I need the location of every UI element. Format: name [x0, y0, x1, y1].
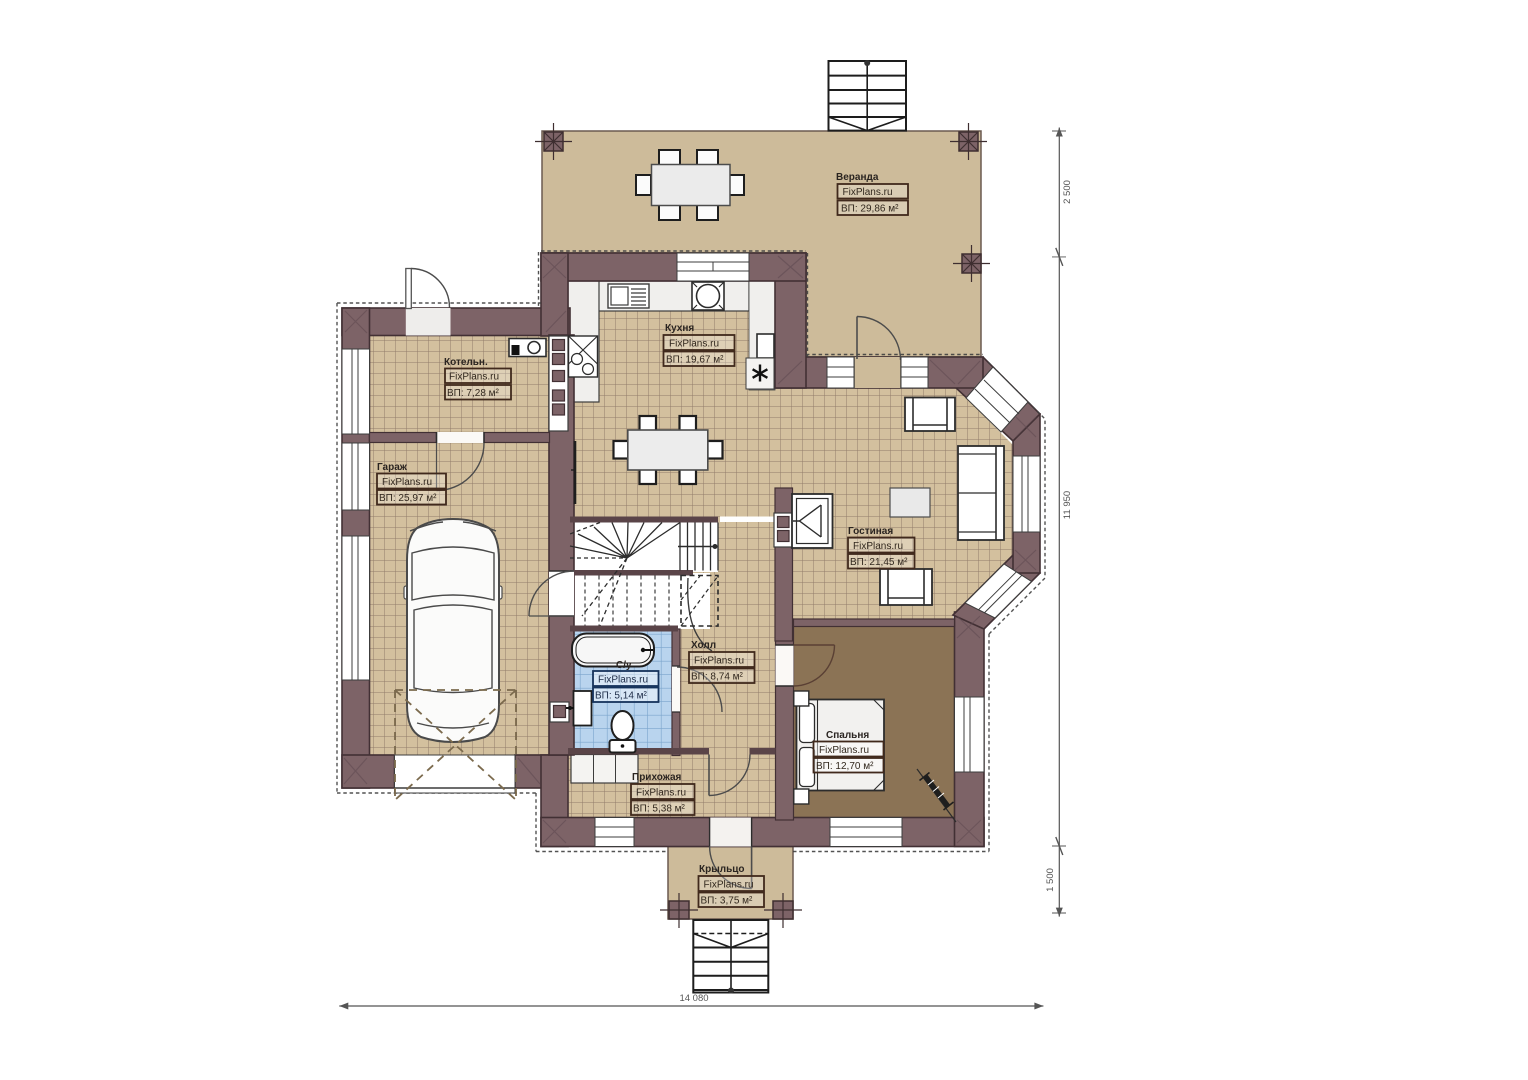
svg-text:1 500: 1 500 [1045, 868, 1056, 892]
svg-text:ВП: 3,75 м²: ВП: 3,75 м² [701, 896, 754, 907]
svg-text:ВП: 8,74 м²: ВП: 8,74 м² [691, 672, 744, 683]
svg-text:FixPlans.ru: FixPlans.ru [819, 745, 869, 756]
svg-text:ВП: 5,14 м²: ВП: 5,14 м² [595, 691, 648, 702]
svg-text:ВП: 19,67 м²: ВП: 19,67 м² [666, 355, 724, 366]
svg-text:FixPlans.ru: FixPlans.ru [636, 788, 686, 799]
svg-text:FixPlans.ru: FixPlans.ru [843, 187, 893, 198]
svg-text:Спальня: Спальня [826, 730, 869, 741]
svg-text:ВП: 5,38 м²: ВП: 5,38 м² [633, 804, 686, 815]
svg-text:11 950: 11 950 [1062, 491, 1073, 519]
svg-text:ВП: 12,70 м²: ВП: 12,70 м² [816, 761, 874, 772]
svg-text:Гараж: Гараж [377, 462, 408, 473]
svg-text:Крыльцо: Крыльцо [699, 864, 745, 875]
svg-text:FixPlans.ru: FixPlans.ru [669, 339, 719, 350]
svg-text:ВП: 29,86 м²: ВП: 29,86 м² [841, 204, 899, 215]
svg-text:FixPlans.ru: FixPlans.ru [694, 656, 744, 667]
svg-text:FixPlans.ru: FixPlans.ru [598, 675, 648, 686]
svg-text:С/у: С/у [616, 660, 632, 671]
svg-text:ВП: 21,45 м²: ВП: 21,45 м² [850, 557, 908, 568]
svg-text:FixPlans.ru: FixPlans.ru [382, 477, 432, 488]
svg-text:14 080: 14 080 [679, 993, 708, 1004]
svg-text:FixPlans.ru: FixPlans.ru [853, 541, 903, 552]
svg-text:ВП: 7,28 м²: ВП: 7,28 м² [447, 388, 500, 399]
svg-text:Веранда: Веранда [836, 172, 879, 183]
svg-text:2 500: 2 500 [1062, 180, 1073, 204]
svg-text:FixPlans.ru: FixPlans.ru [449, 372, 499, 383]
svg-text:ВП: 25,97 м²: ВП: 25,97 м² [379, 493, 437, 504]
svg-text:Прихожая: Прихожая [632, 772, 682, 783]
svg-text:Кухня: Кухня [665, 323, 694, 334]
svg-text:Холл: Холл [691, 640, 716, 651]
svg-text:Котельн.: Котельн. [444, 357, 488, 368]
svg-text:FixPlans.ru: FixPlans.ru [704, 880, 754, 891]
svg-text:Гостиная: Гостиная [848, 526, 893, 537]
